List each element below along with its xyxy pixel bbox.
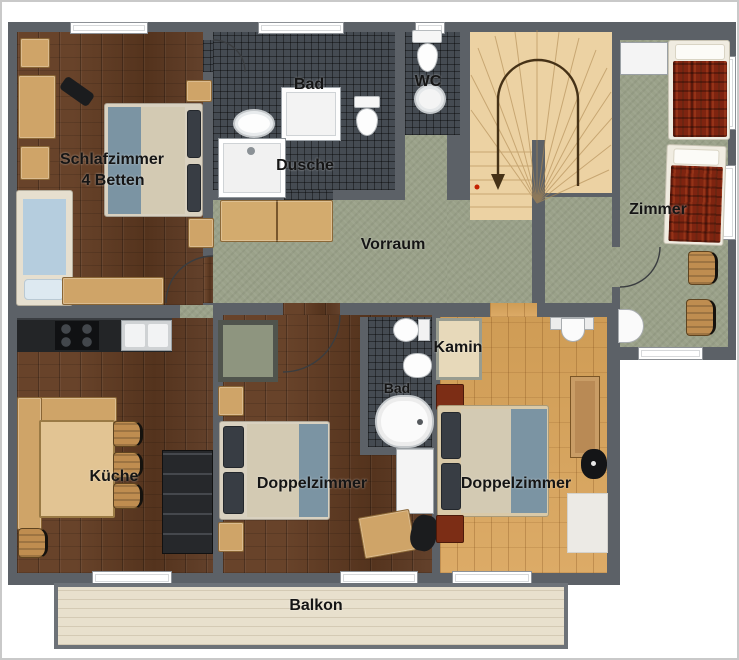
single-bed-mattress <box>23 199 66 275</box>
schlafzimmer-nightstand-1 <box>186 80 212 102</box>
zimmer-closet <box>620 42 668 75</box>
label-vorraum: Vorraum <box>361 236 426 254</box>
label-balkon: Balkon <box>289 597 342 615</box>
schlafzimmer-stool <box>20 146 50 180</box>
label-zimmer: Zimmer <box>629 201 687 219</box>
doppelzimmer-mid-blanket-beige <box>247 424 299 517</box>
schlafzimmer-nightstand-2 <box>188 218 214 248</box>
label-kueche: Küche <box>90 468 139 486</box>
zimmer-bed-1-pillow <box>675 44 725 60</box>
staircase-center-wall <box>532 140 545 220</box>
zimmer-bed-2-pillow <box>673 148 720 166</box>
dusche-tray <box>219 139 285 197</box>
door-doppelzimmer-mid <box>283 303 340 315</box>
label-schlafzimmer-sub: 4 Betten <box>81 172 144 190</box>
doppelzimmer-mid-blanket-blue <box>299 424 328 517</box>
doppelzimmer-right-pillow-2 <box>441 463 461 510</box>
doppelzimmer-right-pillow-1 <box>441 412 461 459</box>
doppelzimmer-mid-desk <box>358 509 417 559</box>
dusche-drain <box>247 147 255 155</box>
door-schlafzimmer-bad <box>203 40 213 72</box>
label-wc: WC <box>415 73 442 91</box>
zimmer-chair-2 <box>686 299 716 336</box>
kueche-stove <box>55 321 99 350</box>
vorraum-wardrobe <box>220 200 333 242</box>
staircase-lower-flight <box>470 195 532 220</box>
bad2-sink <box>403 353 432 378</box>
doppelzimmer-mid-wardrobe <box>396 448 434 514</box>
wc-toilet-tank <box>412 30 442 43</box>
bad-toilet-tank <box>354 96 380 108</box>
schlafzimmer-desk <box>18 75 56 139</box>
door-bad <box>284 190 333 200</box>
doppelzimmer-right-blanket-blue <box>511 409 547 513</box>
doppelzimmer-right-bed <box>437 405 549 517</box>
vorraum-wc-corridor <box>405 135 447 303</box>
label-doppelzimmer-mid: Doppelzimmer <box>257 475 367 493</box>
zimmer-bed-1 <box>668 40 730 140</box>
bad2-bathtub <box>375 395 434 448</box>
zimmer-bed-1-blanket <box>673 61 727 137</box>
bad2-wall-left <box>360 317 368 455</box>
schlafzimmer-bench <box>62 277 164 305</box>
schlafzimmer-chair <box>20 38 50 68</box>
doppelzimmer-mid-bed <box>219 421 330 520</box>
doppelzimmer-mid-pillow-1 <box>223 426 244 468</box>
window-top-1 <box>70 22 148 34</box>
desk-chair-dot <box>591 461 596 466</box>
kueche-sink-basin-2 <box>148 324 168 347</box>
floor-plan: Schlafzimmer 4 Betten Bad Dusche WC Vorr… <box>0 0 739 660</box>
kueche-cabinet <box>162 450 213 554</box>
vorraum-patch-2 <box>470 220 532 303</box>
bad2-toilet-tank <box>418 319 430 341</box>
doppelzimmer-right-desk <box>570 376 600 458</box>
doppelzimmer-mid-nightstand-2 <box>218 522 244 552</box>
doppelzimmer-mid-pillow-2 <box>223 472 244 514</box>
single-bed-pillow <box>24 279 64 300</box>
label-kamin: Kamin <box>434 339 483 357</box>
doppelzimmer-mid-mat <box>218 320 278 382</box>
door-kueche-corner <box>180 305 213 318</box>
bad2-toilet-bowl <box>393 318 419 342</box>
vorraum-patch-1 <box>447 200 470 303</box>
doppelzimmer-mid-nightstand-1 <box>218 386 244 416</box>
vorraum-patch-3 <box>545 197 612 303</box>
label-doppelzimmer-right: Doppelzimmer <box>461 475 571 493</box>
doppelzimmer-right-blanket-beige <box>461 409 511 513</box>
label-dusche: Dusche <box>276 157 334 175</box>
door-zimmer <box>612 247 620 287</box>
kueche-sink <box>121 320 172 351</box>
doppelzimmer-right-rug <box>567 493 608 553</box>
doppelzimmer-right-desk-chair <box>581 449 607 479</box>
kueche-chair-4 <box>18 528 48 558</box>
label-schlafzimmer: Schlafzimmer <box>60 151 164 169</box>
label-bad-mid: Bad <box>384 380 410 396</box>
bad-sink <box>233 109 275 138</box>
kueche-chair-3 <box>113 483 143 509</box>
zimmer-chair-1 <box>688 251 718 285</box>
double-bed-pillow-1 <box>187 110 201 158</box>
kueche-chair-1 <box>113 421 143 447</box>
kueche-sink-basin-1 <box>125 324 145 347</box>
doppelzimmer-right-nightstand-2 <box>436 515 464 543</box>
bad2-bathtub-tap <box>417 419 423 425</box>
zimmer-bed-2 <box>663 144 726 246</box>
door-schlafzimmer <box>203 256 213 303</box>
window-top-2 <box>258 22 344 34</box>
double-bed-pillow-2 <box>187 164 201 212</box>
bad-shower-tray <box>282 88 340 140</box>
window-zimmer-bottom <box>638 347 703 360</box>
balkon-deck <box>54 583 568 649</box>
label-bad-top: Bad <box>294 76 324 94</box>
doppelzimmer-right-sink <box>561 318 585 342</box>
door-doppelzimmer-right <box>490 303 537 317</box>
